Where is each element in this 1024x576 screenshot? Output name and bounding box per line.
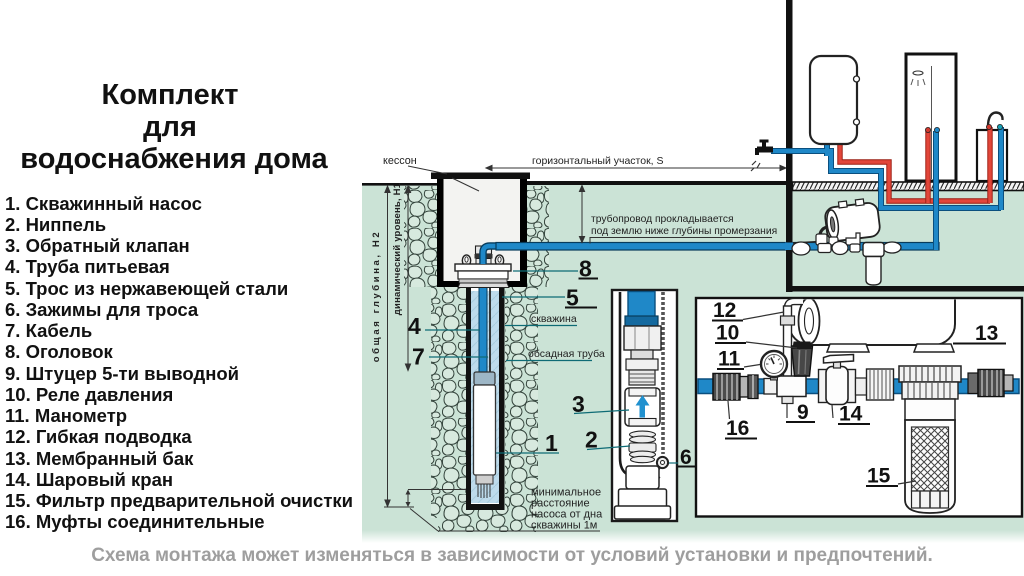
svg-text:общая глубина, Н2: общая глубина, Н2 [371,230,382,363]
svg-text:12. Гибкая подводка: 12. Гибкая подводка [5,426,192,447]
svg-text:обсадная труба: обсадная труба [528,348,605,360]
svg-text:9. Штуцер 5-ти выводной: 9. Штуцер 5-ти выводной [5,363,239,384]
svg-text:14. Шаровый кран: 14. Шаровый кран [5,469,173,490]
svg-text:11: 11 [718,348,741,371]
svg-text:3. Обратный клапан: 3. Обратный клапан [5,235,190,256]
svg-text:4: 4 [408,313,421,339]
svg-text:динамический уровень, Н1: динамический уровень, Н1 [392,182,403,315]
svg-text:11. Манометр: 11. Манометр [5,405,127,426]
svg-text:для: для [143,111,197,143]
svg-text:16: 16 [726,417,749,440]
svg-text:5: 5 [566,285,579,311]
svg-text:7. Кабель: 7. Кабель [5,320,92,341]
svg-text:трубопровод прокладывается: трубопровод прокладывается [591,213,734,225]
svg-text:10: 10 [716,322,739,345]
svg-text:1. Скважинный насос: 1. Скважинный насос [5,193,202,214]
svg-text:13: 13 [975,322,998,345]
svg-text:14: 14 [839,403,863,426]
svg-text:16. Муфты соединительные: 16. Муфты соединительные [5,511,265,532]
svg-text:4. Труба питьевая: 4. Труба питьевая [5,256,170,277]
svg-text:1: 1 [545,430,558,456]
svg-text:13. Мембранный бак: 13. Мембранный бак [5,448,194,469]
svg-text:водоснабжения дома: водоснабжения дома [20,143,328,175]
svg-text:12: 12 [713,299,736,322]
svg-text:9: 9 [797,401,809,424]
svg-text:2. Ниппель: 2. Ниппель [5,214,106,235]
svg-text:7: 7 [412,344,425,370]
svg-text:под землю ниже глубины промерз: под землю ниже глубины промерзания [591,225,777,237]
svg-text:горизонтальный участок, S: горизонтальный участок, S [532,155,664,167]
svg-text:Комплект: Комплект [102,79,239,111]
svg-text:Схема монтажа может изменяться: Схема монтажа может изменяться в зависим… [91,545,933,566]
svg-text:8: 8 [579,256,592,282]
svg-text:скважины 1м: скважины 1м [531,520,597,532]
svg-text:8. Оголовок: 8. Оголовок [5,341,113,362]
svg-text:10. Реле давления: 10. Реле давления [5,384,173,405]
svg-text:5. Трос из нержавеющей стали: 5. Трос из нержавеющей стали [5,278,288,299]
svg-text:6. Зажимы для троса: 6. Зажимы для троса [5,299,199,320]
svg-text:15. Фильтр предварительной очи: 15. Фильтр предварительной очистки [5,490,353,511]
svg-text:15: 15 [867,465,891,488]
svg-text:кессон: кессон [383,155,417,167]
svg-text:скважина: скважина [531,313,577,325]
